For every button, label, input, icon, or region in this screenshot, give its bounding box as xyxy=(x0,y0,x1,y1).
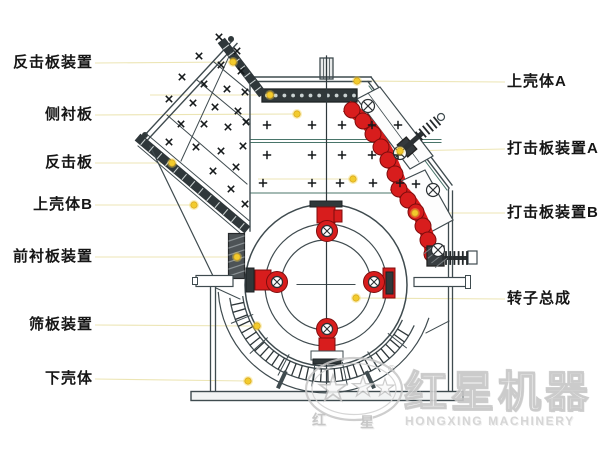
impact-crusher-diagram-page: 反击板装置 侧衬板 反击板 上壳体B 前衬板装置 筛板装置 下壳体 上壳体A 打… xyxy=(0,0,600,450)
label-blow-bar-device-a: 打击板装置A xyxy=(507,139,599,159)
logo-brand-chinese: 红星机器 xyxy=(404,370,594,416)
label-impact-plate-device: 反击板装置 xyxy=(13,53,93,73)
label-rotor-assembly: 转子总成 xyxy=(507,289,571,309)
label-upper-shell-b: 上壳体B xyxy=(33,195,93,215)
left-leg xyxy=(211,287,216,392)
logo-char-hong: 红 xyxy=(312,410,326,430)
label-impact-plate: 反击板 xyxy=(45,153,93,173)
label-blow-bar-device-b: 打击板装置B xyxy=(507,203,599,223)
label-sieve-plate-device: 筛板装置 xyxy=(29,315,93,335)
label-lower-shell: 下壳体 xyxy=(45,369,93,389)
logo-char-xing: 星 xyxy=(360,412,374,432)
logo-brand-english: HONGXING MACHINERY xyxy=(405,414,595,428)
machine-body xyxy=(138,36,477,401)
label-front-liner-device: 前衬板装置 xyxy=(13,247,93,267)
label-upper-shell-a: 上壳体A xyxy=(507,72,567,92)
registered-mark: ® xyxy=(388,364,395,375)
label-side-liner: 侧衬板 xyxy=(45,105,93,125)
